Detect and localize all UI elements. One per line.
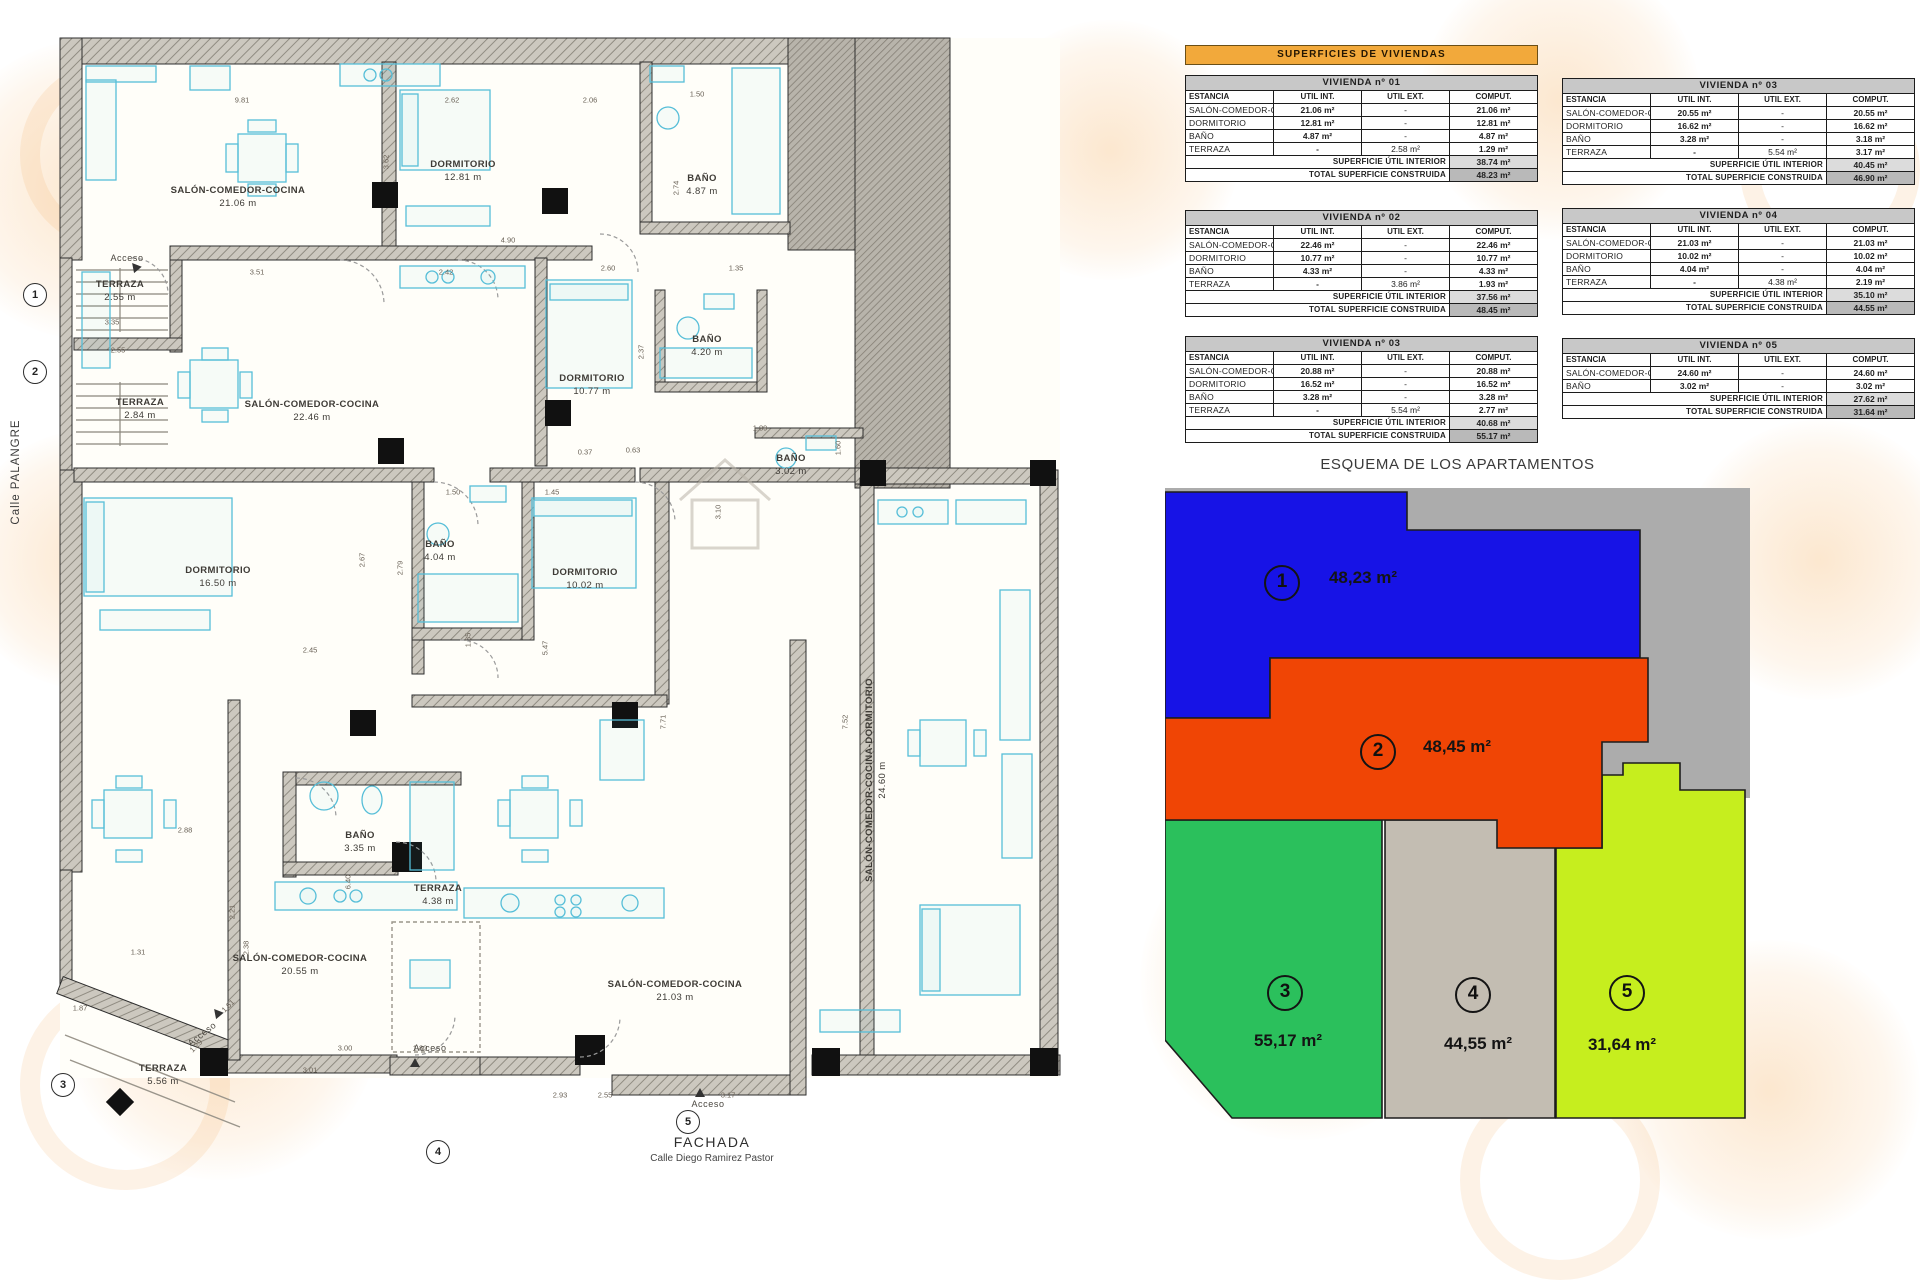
room-cell: DORMITORIO [1186, 117, 1274, 130]
plan-label-layer: SALÓN-COMEDOR-COCINA21.06 mDORMITORIO12.… [0, 0, 1060, 1280]
room-area: 2.55 m [104, 292, 135, 303]
room-name: SALÓN-COMEDOR-COCINA-DORMITORIO [864, 678, 877, 882]
access-label: Acceso [413, 1043, 446, 1053]
room-area: 12.81 m [444, 172, 481, 183]
room-cell: SALÓN-COMEDOR-COCINA [1186, 104, 1274, 117]
room-cell: BAÑO [1563, 133, 1651, 146]
value-cell: - [1739, 263, 1827, 276]
column-header: ESTANCIA [1186, 226, 1274, 239]
table-title: VIVIENDA nº 03 [1186, 337, 1538, 352]
apartment-number: 4 [1455, 977, 1491, 1013]
table-title-row: VIVIENDA nº 02 [1186, 211, 1538, 226]
room-area: 4.20 m [691, 347, 722, 358]
room-cell: TERRAZA [1186, 404, 1274, 417]
room-area: 2.84 m [124, 410, 155, 421]
column-header: ESTANCIA [1563, 224, 1651, 237]
table-header-row: ESTANCIAUTIL INT.UTIL EXT.COMPUT. [1186, 352, 1538, 365]
apartment-area: 48,45 m² [1423, 737, 1491, 757]
room-area: 10.02 m [566, 580, 603, 591]
dimension-label: 2.93 [553, 1091, 568, 1100]
table-title-row: VIVIENDA nº 01 [1186, 76, 1538, 91]
value-cell: - [1739, 237, 1827, 250]
value-cell: 24.60 m² [1651, 367, 1739, 380]
column-header: UTIL INT. [1274, 91, 1362, 104]
summary-row: SUPERFICIE ÚTIL INTERIOR35.10 m² [1563, 289, 1915, 302]
room-label: SALÓN-COMEDOR-COCINA22.46 m [245, 399, 380, 425]
table-title-row: VIVIENDA nº 04 [1563, 209, 1915, 224]
column-header: UTIL EXT. [1739, 224, 1827, 237]
table-row: TERRAZA-5.54 m²3.17 m² [1563, 146, 1915, 159]
room-name: DORMITORIO [185, 565, 251, 578]
summary-row: TOTAL SUPERFICIE CONSTRUIDA44.55 m² [1563, 302, 1915, 315]
value-cell: - [1651, 146, 1739, 159]
value-cell: - [1739, 380, 1827, 393]
table-row: SALÓN-COMEDOR-COCINA-DORMITORIO24.60 m²-… [1563, 367, 1915, 380]
dimension-label: 1.35 [464, 633, 473, 648]
dimension-label: 4.90 [501, 236, 516, 245]
room-area: 16.50 m [199, 578, 236, 589]
value-cell: - [1362, 391, 1450, 404]
room-label: DORMITORIO12.81 m [430, 159, 496, 185]
value-cell: - [1362, 378, 1450, 391]
summary-value: 27.62 m² [1827, 393, 1915, 406]
room-name: SALÓN-COMEDOR-COCINA [171, 185, 306, 198]
dimension-label: 2.42 [439, 268, 454, 277]
table-title-row: VIVIENDA nº 03 [1186, 337, 1538, 352]
table-row: DORMITORIO10.02 m²-10.02 m² [1563, 250, 1915, 263]
value-cell: - [1362, 265, 1450, 278]
room-area: 22.46 m [293, 412, 330, 423]
dimension-label: 3.01 [303, 1066, 318, 1075]
dimension-label: 2.45 [303, 646, 318, 655]
apartment-number: 3 [1267, 975, 1303, 1011]
dimension-label: 1.35 [729, 264, 744, 273]
value-cell: 16.62 m² [1827, 120, 1915, 133]
value-cell: 3.28 m² [1651, 133, 1739, 146]
room-label: SALÓN-COMEDOR-COCINA21.03 m [608, 979, 743, 1005]
apartment-area: 31,64 m² [1588, 1035, 1656, 1055]
value-cell: 1.29 m² [1450, 143, 1538, 156]
room-label: BAÑO3.02 m [775, 453, 806, 479]
value-cell: 2.77 m² [1450, 404, 1538, 417]
value-cell: 3.28 m² [1450, 391, 1538, 404]
vivienda-table: VIVIENDA nº 02ESTANCIAUTIL INT.UTIL EXT.… [1185, 210, 1538, 317]
value-cell: 21.03 m² [1827, 237, 1915, 250]
summary-row: TOTAL SUPERFICIE CONSTRUIDA31.64 m² [1563, 406, 1915, 419]
value-cell: - [1362, 252, 1450, 265]
dimension-label: 0.63 [626, 446, 641, 455]
table-header-row: ESTANCIAUTIL INT.UTIL EXT.COMPUT. [1563, 224, 1915, 237]
dimension-label: 5.47 [541, 641, 550, 656]
column-header: ESTANCIA [1563, 354, 1651, 367]
column-header: COMPUT. [1827, 224, 1915, 237]
access-label: Acceso [110, 253, 143, 263]
value-cell: 16.52 m² [1450, 378, 1538, 391]
table-row: BAÑO4.33 m²-4.33 m² [1186, 265, 1538, 278]
room-name: BAÑO [686, 173, 717, 186]
room-area: 4.38 m [422, 896, 453, 907]
summary-label: SUPERFICIE ÚTIL INTERIOR [1563, 289, 1827, 302]
value-cell: 20.88 m² [1450, 365, 1538, 378]
room-name: TERRAZA [414, 883, 462, 896]
dimension-label: 3.51 [250, 268, 265, 277]
room-name: BAÑO [775, 453, 806, 466]
value-cell: 3.86 m² [1362, 278, 1450, 291]
room-cell: SALÓN-COMEDOR-COCINA-DORMITORIO [1563, 367, 1651, 380]
column-header: COMPUT. [1827, 354, 1915, 367]
summary-row: SUPERFICIE ÚTIL INTERIOR40.68 m² [1186, 417, 1538, 430]
value-cell: 1.93 m² [1450, 278, 1538, 291]
summary-row: SUPERFICIE ÚTIL INTERIOR38.74 m² [1186, 156, 1538, 169]
street-label: Calle PALANGRE [10, 419, 22, 524]
summary-row: SUPERFICIE ÚTIL INTERIOR37.56 m² [1186, 291, 1538, 304]
vivienda-table: VIVIENDA nº 03ESTANCIAUTIL INT.UTIL EXT.… [1185, 336, 1538, 443]
room-cell: DORMITORIO [1563, 250, 1651, 263]
value-cell: 10.77 m² [1274, 252, 1362, 265]
table-row: TERRAZA-2.58 m²1.29 m² [1186, 143, 1538, 156]
apartment-schematic: 148,23 m²248,45 m²355,17 m²444,55 m²531,… [1165, 488, 1750, 1120]
value-cell: 10.02 m² [1651, 250, 1739, 263]
summary-row: TOTAL SUPERFICIE CONSTRUIDA46.90 m² [1563, 172, 1915, 185]
room-label: TERRAZA5.56 m [139, 1063, 187, 1089]
room-label: TERRAZA2.84 m [116, 397, 164, 423]
room-cell: DORMITORIO [1186, 378, 1274, 391]
room-cell: BAÑO [1186, 391, 1274, 404]
room-area: 10.77 m [573, 386, 610, 397]
dimension-label: 6.40 [344, 875, 353, 890]
room-area: 4.87 m [686, 186, 717, 197]
dimension-label: 2.60 [601, 264, 616, 273]
apartment-area: 44,55 m² [1444, 1034, 1512, 1054]
table-title: VIVIENDA nº 05 [1563, 339, 1915, 354]
summary-row: TOTAL SUPERFICIE CONSTRUIDA48.23 m² [1186, 169, 1538, 182]
table-vivienda-03b: VIVIENDA nº 03ESTANCIAUTIL INT.UTIL EXT.… [1562, 78, 1915, 185]
room-area: 24.60 m [877, 761, 888, 798]
apartment-number: 5 [1609, 975, 1645, 1011]
room-cell: TERRAZA [1186, 278, 1274, 291]
summary-label: TOTAL SUPERFICIE CONSTRUIDA [1186, 169, 1450, 182]
room-cell: SALÓN-COMEDOR-COCINA [1186, 365, 1274, 378]
column-header: UTIL INT. [1274, 226, 1362, 239]
value-cell: 5.54 m² [1739, 146, 1827, 159]
dimension-label: 7.52 [841, 715, 850, 730]
dimension-label: 1.31 [131, 948, 146, 957]
room-area: 3.02 m [775, 466, 806, 477]
summary-value: 40.68 m² [1450, 417, 1538, 430]
value-cell: 5.54 m² [1362, 404, 1450, 417]
room-cell: TERRAZA [1563, 276, 1651, 289]
room-cell: BAÑO [1186, 130, 1274, 143]
value-cell: 12.81 m² [1450, 117, 1538, 130]
summary-label: TOTAL SUPERFICIE CONSTRUIDA [1563, 302, 1827, 315]
value-cell: - [1739, 367, 1827, 380]
dimension-label: 1.89 [753, 424, 768, 433]
column-header: COMPUT. [1827, 94, 1915, 107]
room-label: TERRAZA2.55 m [96, 279, 144, 305]
room-area: 3.35 m [344, 843, 375, 854]
room-label: DORMITORIO10.77 m [559, 373, 625, 399]
apartment-area: 55,17 m² [1254, 1031, 1322, 1051]
column-header: ESTANCIA [1563, 94, 1651, 107]
access-label: Acceso [691, 1099, 724, 1109]
column-header: UTIL EXT. [1362, 352, 1450, 365]
summary-label: SUPERFICIE ÚTIL INTERIOR [1186, 156, 1450, 169]
room-name: DORMITORIO [552, 567, 618, 580]
vivienda-table: VIVIENDA nº 01ESTANCIAUTIL INT.UTIL EXT.… [1185, 75, 1538, 182]
value-cell: 3.02 m² [1651, 380, 1739, 393]
dimension-label: 1.60 [834, 441, 843, 456]
room-label: SALÓN-COMEDOR-COCINA-DORMITORIO24.60 m [864, 678, 890, 882]
table-title-row: VIVIENDA nº 05 [1563, 339, 1915, 354]
apartment-number: 2 [1360, 734, 1396, 770]
room-label: SALÓN-COMEDOR-COCINA20.55 m [233, 953, 368, 979]
table-row: SALÓN-COMEDOR-COCINA20.55 m²-20.55 m² [1563, 107, 1915, 120]
plan-marker-4: 4 [426, 1140, 450, 1164]
room-cell: BAÑO [1563, 263, 1651, 276]
summary-row: SUPERFICIE ÚTIL INTERIOR40.45 m² [1563, 159, 1915, 172]
value-cell: 4.87 m² [1450, 130, 1538, 143]
room-name: BAÑO [344, 830, 375, 843]
table-row: TERRAZA-4.38 m²2.19 m² [1563, 276, 1915, 289]
room-label: DORMITORIO16.50 m [185, 565, 251, 591]
plan-marker-5: 5 [676, 1110, 700, 1134]
table-row: SALÓN-COMEDOR-COCINA21.03 m²-21.03 m² [1563, 237, 1915, 250]
value-cell: 4.04 m² [1651, 263, 1739, 276]
room-cell: TERRAZA [1186, 143, 1274, 156]
value-cell: 21.06 m² [1450, 104, 1538, 117]
table-header-row: ESTANCIAUTIL INT.UTIL EXT.COMPUT. [1563, 354, 1915, 367]
column-header: UTIL EXT. [1739, 354, 1827, 367]
table-title: VIVIENDA nº 01 [1186, 76, 1538, 91]
room-cell: BAÑO [1186, 265, 1274, 278]
table-title: VIVIENDA nº 03 [1563, 79, 1915, 94]
column-header: COMPUT. [1450, 226, 1538, 239]
value-cell: 3.28 m² [1274, 391, 1362, 404]
room-cell: DORMITORIO [1186, 252, 1274, 265]
room-label: DORMITORIO10.02 m [552, 567, 618, 593]
column-header: UTIL EXT. [1739, 94, 1827, 107]
value-cell: 10.77 m² [1450, 252, 1538, 265]
column-header: UTIL EXT. [1362, 91, 1450, 104]
room-cell: DORMITORIO [1563, 120, 1651, 133]
value-cell: 16.52 m² [1274, 378, 1362, 391]
room-name: TERRAZA [96, 279, 144, 292]
value-cell: 4.87 m² [1274, 130, 1362, 143]
summary-label: SUPERFICIE ÚTIL INTERIOR [1186, 291, 1450, 304]
value-cell: 2.58 m² [1362, 143, 1450, 156]
summary-label: SUPERFICIE ÚTIL INTERIOR [1563, 159, 1827, 172]
value-cell: 4.04 m² [1827, 263, 1915, 276]
value-cell: 21.06 m² [1274, 104, 1362, 117]
dimension-label: 2.88 [178, 826, 193, 835]
table-row: BAÑO3.02 m²-3.02 m² [1563, 380, 1915, 393]
table-vivienda-04: VIVIENDA nº 04ESTANCIAUTIL INT.UTIL EXT.… [1562, 208, 1915, 315]
value-cell: - [1362, 239, 1450, 252]
dimension-label: 2.55 [598, 1091, 613, 1100]
value-cell: 3.02 m² [1827, 380, 1915, 393]
value-cell: - [1274, 278, 1362, 291]
value-cell: 2.19 m² [1827, 276, 1915, 289]
dimension-label: 0.37 [578, 448, 593, 457]
summary-value: 55.17 m² [1450, 430, 1538, 443]
room-label: BAÑO4.04 m [424, 539, 455, 565]
value-cell: - [1739, 120, 1827, 133]
summary-value: 48.45 m² [1450, 304, 1538, 317]
column-header: COMPUT. [1450, 352, 1538, 365]
summary-row: SUPERFICIE ÚTIL INTERIOR27.62 m² [1563, 393, 1915, 406]
room-name: SALÓN-COMEDOR-COCINA [245, 399, 380, 412]
summary-value: 38.74 m² [1450, 156, 1538, 169]
value-cell: 3.17 m² [1827, 146, 1915, 159]
summary-value: 35.10 m² [1827, 289, 1915, 302]
room-label: SALÓN-COMEDOR-COCINA21.06 m [171, 185, 306, 211]
value-cell: 20.88 m² [1274, 365, 1362, 378]
value-cell: - [1739, 133, 1827, 146]
apartment-area: 48,23 m² [1329, 568, 1397, 588]
value-cell: - [1739, 250, 1827, 263]
table-row: DORMITORIO10.77 m²-10.77 m² [1186, 252, 1538, 265]
room-area: 20.55 m [281, 966, 318, 977]
vivienda-table: VIVIENDA nº 03ESTANCIAUTIL INT.UTIL EXT.… [1562, 78, 1915, 185]
value-cell: 4.33 m² [1450, 265, 1538, 278]
value-cell: 10.02 m² [1827, 250, 1915, 263]
room-area: 5.56 m [147, 1076, 178, 1087]
column-header: COMPUT. [1450, 91, 1538, 104]
value-cell: - [1362, 117, 1450, 130]
room-cell: BAÑO [1563, 380, 1651, 393]
room-cell: TERRAZA [1563, 146, 1651, 159]
value-cell: 20.55 m² [1651, 107, 1739, 120]
table-row: TERRAZA-5.54 m²2.77 m² [1186, 404, 1538, 417]
summary-value: 46.90 m² [1827, 172, 1915, 185]
dimension-label: 2.67 [358, 553, 367, 568]
value-cell: - [1651, 276, 1739, 289]
room-area: 4.04 m [424, 552, 455, 563]
room-label: BAÑO3.35 m [344, 830, 375, 856]
table-row: DORMITORIO16.52 m²-16.52 m² [1186, 378, 1538, 391]
table-row: DORMITORIO16.62 m²-16.62 m² [1563, 120, 1915, 133]
value-cell: - [1274, 143, 1362, 156]
access-arrow [410, 1058, 420, 1067]
value-cell: 3.18 m² [1827, 133, 1915, 146]
apartment-number: 1 [1264, 565, 1300, 601]
table-row: BAÑO3.28 m²-3.28 m² [1186, 391, 1538, 404]
value-cell: 22.46 m² [1450, 239, 1538, 252]
vivienda-table: VIVIENDA nº 05ESTANCIAUTIL INT.UTIL EXT.… [1562, 338, 1915, 419]
value-cell: 22.46 m² [1274, 239, 1362, 252]
dimension-label: 9.81 [235, 96, 250, 105]
table-header-row: ESTANCIAUTIL INT.UTIL EXT.COMPUT. [1563, 94, 1915, 107]
table-vivienda-02: VIVIENDA nº 02ESTANCIAUTIL INT.UTIL EXT.… [1185, 210, 1538, 317]
table-row: SALÓN-COMEDOR-COCINA22.46 m²-22.46 m² [1186, 239, 1538, 252]
room-name: SALÓN-COMEDOR-COCINA [233, 953, 368, 966]
summary-label: TOTAL SUPERFICIE CONSTRUIDA [1563, 406, 1827, 419]
plan-marker-3: 3 [51, 1073, 75, 1097]
table-title: VIVIENDA nº 02 [1186, 211, 1538, 226]
room-area: 21.06 m [219, 198, 256, 209]
access-arrow [695, 1088, 705, 1097]
summary-value: 40.45 m² [1827, 159, 1915, 172]
table-vivienda-03: VIVIENDA nº 03ESTANCIAUTIL INT.UTIL EXT.… [1185, 336, 1538, 443]
summary-label: SUPERFICIE ÚTIL INTERIOR [1563, 393, 1827, 406]
dimension-label: 1.87 [73, 1004, 88, 1013]
summary-value: 44.55 m² [1827, 302, 1915, 315]
value-cell: 21.03 m² [1651, 237, 1739, 250]
room-name: DORMITORIO [430, 159, 496, 172]
dimension-label: 3.00 [338, 1044, 353, 1053]
surfaces-banner: SUPERFICIES DE VIVIENDAS [1185, 45, 1538, 65]
room-name: BAÑO [424, 539, 455, 552]
dimension-label: 1.45 [545, 488, 560, 497]
room-cell: SALÓN-COMEDOR-COCINA [1563, 107, 1651, 120]
column-header: UTIL INT. [1651, 94, 1739, 107]
plan-marker-2: 2 [23, 360, 47, 384]
value-cell: - [1739, 107, 1827, 120]
summary-label: TOTAL SUPERFICIE CONSTRUIDA [1186, 304, 1450, 317]
table-title-row: VIVIENDA nº 03 [1563, 79, 1915, 94]
room-cell: SALÓN-COMEDOR-COCINA [1186, 239, 1274, 252]
facade-title: FACHADA [674, 1134, 751, 1150]
table-header-row: ESTANCIAUTIL INT.UTIL EXT.COMPUT. [1186, 226, 1538, 239]
table-row: BAÑO3.28 m²-3.18 m² [1563, 133, 1915, 146]
dimension-label: 3.10 [714, 505, 723, 520]
value-cell: - [1362, 130, 1450, 143]
summary-row: TOTAL SUPERFICIE CONSTRUIDA55.17 m² [1186, 430, 1538, 443]
plan-marker-1: 1 [23, 283, 47, 307]
value-cell: - [1362, 104, 1450, 117]
summary-value: 37.56 m² [1450, 291, 1538, 304]
value-cell: 12.81 m² [1274, 117, 1362, 130]
table-row: DORMITORIO12.81 m²-12.81 m² [1186, 117, 1538, 130]
value-cell: 20.55 m² [1827, 107, 1915, 120]
column-header: UTIL INT. [1274, 352, 1362, 365]
summary-value: 31.64 m² [1827, 406, 1915, 419]
value-cell: 4.33 m² [1274, 265, 1362, 278]
column-header: UTIL INT. [1651, 224, 1739, 237]
table-row: BAÑO4.87 m²-4.87 m² [1186, 130, 1538, 143]
summary-label: TOTAL SUPERFICIE CONSTRUIDA [1563, 172, 1827, 185]
room-name: BAÑO [691, 334, 722, 347]
summary-value: 48.23 m² [1450, 169, 1538, 182]
room-name: TERRAZA [116, 397, 164, 410]
table-row: SALÓN-COMEDOR-COCINA21.06 m²-21.06 m² [1186, 104, 1538, 117]
column-header: UTIL INT. [1651, 354, 1739, 367]
dimension-label: 2.21 [228, 905, 237, 920]
dimension-label: 1.50 [690, 90, 705, 99]
dimension-label: 2.74 [672, 181, 681, 196]
room-label: BAÑO4.20 m [691, 334, 722, 360]
dimension-label: 2.37 [637, 345, 646, 360]
value-cell: - [1274, 404, 1362, 417]
table-vivienda-05: VIVIENDA nº 05ESTANCIAUTIL INT.UTIL EXT.… [1562, 338, 1915, 419]
value-cell: 16.62 m² [1651, 120, 1739, 133]
dimension-label: 7.71 [659, 715, 668, 730]
room-cell: SALÓN-COMEDOR-COCINA [1563, 237, 1651, 250]
table-row: SALÓN-COMEDOR-COCINA20.88 m²-20.88 m² [1186, 365, 1538, 378]
room-name: TERRAZA [139, 1063, 187, 1076]
dimension-label: 1.50 [446, 488, 461, 497]
value-cell: 24.60 m² [1827, 367, 1915, 380]
table-header-row: ESTANCIAUTIL INT.UTIL EXT.COMPUT. [1186, 91, 1538, 104]
dimension-label: 2.62 [445, 96, 460, 105]
dimension-label: 3.35 [105, 318, 120, 327]
summary-row: TOTAL SUPERFICIE CONSTRUIDA48.45 m² [1186, 304, 1538, 317]
vivienda-table: VIVIENDA nº 04ESTANCIAUTIL INT.UTIL EXT.… [1562, 208, 1915, 315]
dimension-label: 3.62 [382, 155, 391, 170]
room-label: TERRAZA4.38 m [414, 883, 462, 909]
value-cell: - [1362, 365, 1450, 378]
dimension-label: 2.55 [111, 346, 126, 355]
